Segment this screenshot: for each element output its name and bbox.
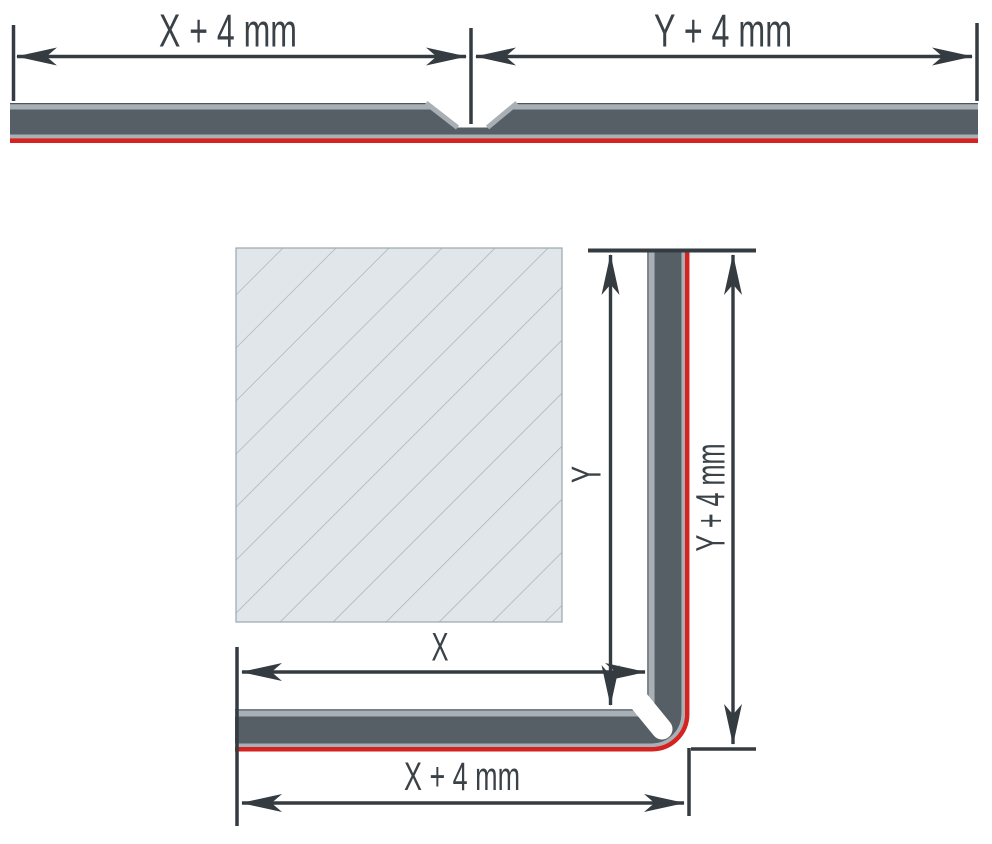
panel-bottom-skin <box>10 135 978 139</box>
folded-panel-view: Y Y + 4 mm X X + 4 mm <box>235 248 756 826</box>
folded-y-dim-label: Y <box>563 466 610 483</box>
hatched-block <box>236 248 562 622</box>
fold-technical-diagram: X + 4 mm Y + 4 mm Y Y + 4 mm X X + 4 mm <box>0 0 992 844</box>
folded-x-dim-label: X <box>432 626 449 670</box>
flat-left-dim-label: X + 4 mm <box>159 5 297 57</box>
flat-right-dim-label: Y + 4 mm <box>654 5 792 57</box>
folded-x-plus-4-dim-label: X + 4 mm <box>404 755 520 799</box>
panel-outer-face-red <box>10 138 978 143</box>
diagram-canvas: X + 4 mm Y + 4 mm Y Y + 4 mm X X + 4 mm <box>0 0 992 844</box>
folded-y-plus-4-dim-label: Y + 4 mm <box>688 444 734 552</box>
flat-panel-cross-section: X + 4 mm Y + 4 mm <box>10 5 978 144</box>
